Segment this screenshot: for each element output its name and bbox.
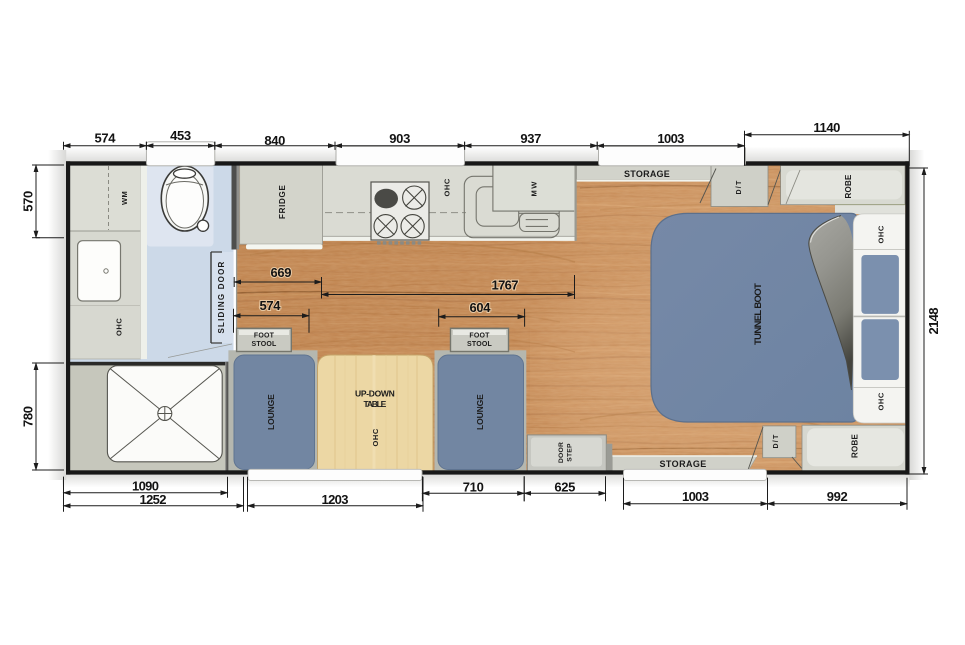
- svg-text:TABLE: TABLE: [364, 399, 387, 409]
- svg-text:STEP: STEP: [567, 443, 574, 462]
- svg-text:669: 669: [271, 265, 292, 280]
- svg-text:1767: 1767: [492, 278, 519, 293]
- svg-text:625: 625: [554, 479, 575, 494]
- svg-text:840: 840: [264, 133, 285, 148]
- svg-text:570: 570: [21, 191, 36, 212]
- svg-text:FRIDGE: FRIDGE: [278, 185, 287, 219]
- svg-text:OHC: OHC: [877, 225, 886, 243]
- svg-text:574: 574: [95, 131, 117, 146]
- svg-text:ROBE: ROBE: [844, 174, 853, 198]
- svg-text:STOOL: STOOL: [467, 341, 493, 348]
- svg-text:1203: 1203: [322, 492, 349, 507]
- svg-text:OHC: OHC: [115, 318, 124, 336]
- svg-text:D/T: D/T: [736, 180, 743, 195]
- svg-text:FOOT: FOOT: [254, 332, 275, 339]
- svg-text:STOOL: STOOL: [252, 341, 278, 348]
- svg-text:1003: 1003: [682, 489, 709, 504]
- svg-text:LOUNGE: LOUNGE: [475, 394, 485, 430]
- svg-text:STORAGE: STORAGE: [660, 459, 707, 469]
- svg-text:TUNNEL BOOT: TUNNEL BOOT: [753, 283, 764, 345]
- svg-text:903: 903: [389, 131, 410, 146]
- svg-text:1140: 1140: [813, 120, 840, 135]
- svg-text:MW: MW: [530, 181, 539, 197]
- svg-text:937: 937: [520, 131, 541, 146]
- svg-text:992: 992: [827, 489, 848, 504]
- svg-text:OHC: OHC: [443, 178, 452, 196]
- svg-text:LOUNGE: LOUNGE: [266, 394, 276, 430]
- svg-text:UP-DOWN: UP-DOWN: [355, 389, 395, 399]
- svg-text:OHC: OHC: [877, 392, 886, 410]
- svg-text:1252: 1252: [140, 492, 167, 507]
- svg-text:DOOR: DOOR: [558, 442, 565, 463]
- svg-text:OHC: OHC: [371, 428, 380, 446]
- svg-text:780: 780: [21, 406, 36, 427]
- svg-text:SLIDING DOOR: SLIDING DOOR: [217, 261, 226, 333]
- svg-text:453: 453: [170, 128, 191, 143]
- svg-text:STORAGE: STORAGE: [624, 169, 670, 179]
- svg-text:D/T: D/T: [773, 434, 780, 449]
- svg-text:604: 604: [470, 300, 492, 315]
- svg-text:710: 710: [463, 479, 484, 494]
- svg-text:FOOT: FOOT: [469, 332, 490, 339]
- svg-text:2148: 2148: [926, 308, 941, 335]
- svg-text:574: 574: [260, 298, 282, 313]
- svg-text:1003: 1003: [657, 131, 684, 146]
- svg-text:ROBE: ROBE: [851, 434, 860, 458]
- svg-text:WM: WM: [120, 191, 129, 205]
